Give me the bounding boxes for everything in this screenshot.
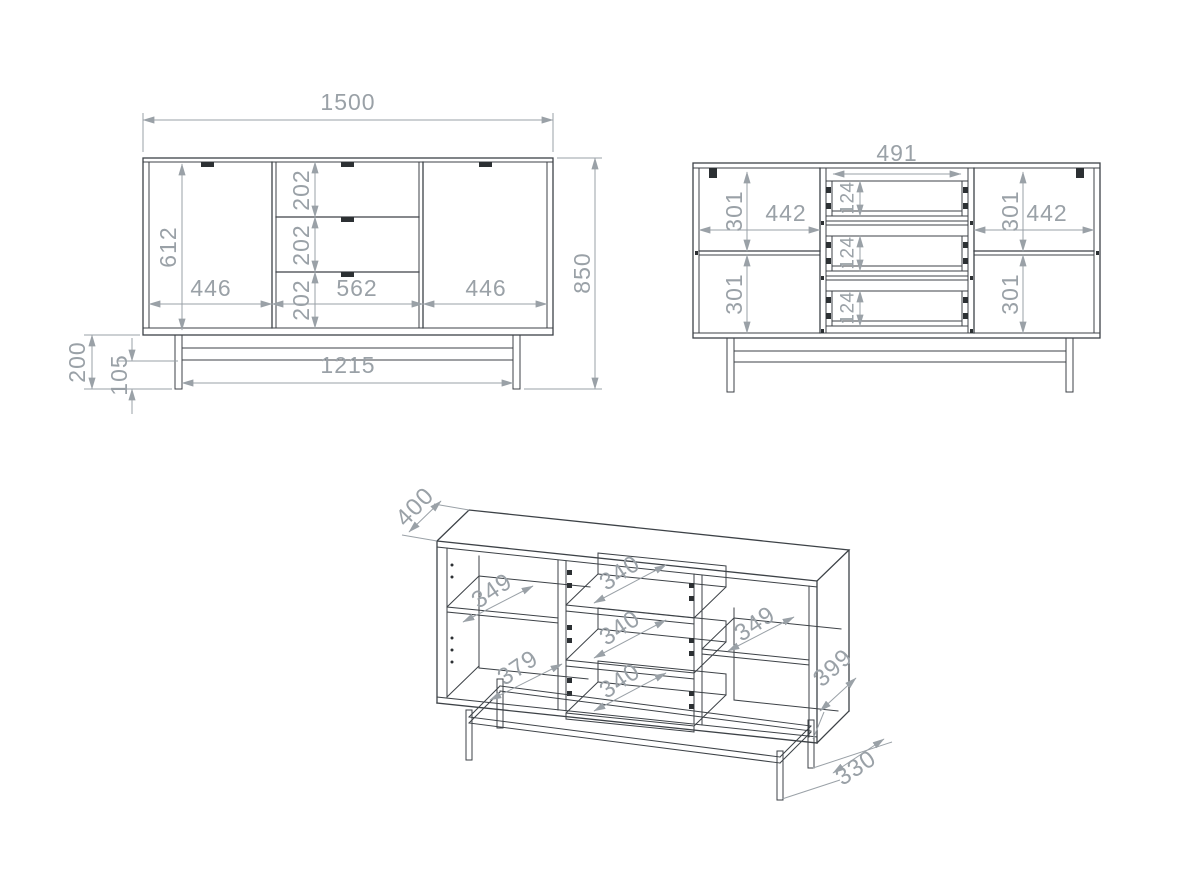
dim-depth: 400 (390, 482, 439, 532)
dim-drawer-front-top: 202 (288, 169, 314, 210)
handle-notch (201, 162, 214, 167)
iso-base-frame (466, 679, 814, 800)
dim-base-frame-depth: 330 (831, 745, 882, 791)
dim-drawer-opening-width: 491 (876, 140, 917, 166)
handle-notch (341, 162, 354, 167)
drawing-canvas: 1500 850 612 202 202 202 446 562 446 (0, 0, 1177, 882)
dim-right-width: 442 (1026, 200, 1067, 226)
hinge-mark (709, 168, 717, 178)
dim-overall-height: 850 (569, 252, 595, 293)
dim-right-shelf-depth: 349 (730, 601, 781, 647)
dim-right-bottom-height: 301 (997, 273, 1023, 314)
technical-drawing: 1500 850 612 202 202 202 446 562 446 (0, 0, 1177, 882)
dim-rail-clearance: 105 (106, 354, 132, 395)
dim-drawer-section-width: 562 (336, 275, 377, 301)
front-view: 1500 850 612 202 202 202 446 562 446 (64, 89, 602, 414)
front-dimensions: 1500 850 612 202 202 202 446 562 446 (64, 89, 602, 414)
dim-side-panel-depth: 399 (808, 644, 858, 693)
dim-drawer-box-middle: 124 (838, 236, 859, 269)
dim-leg-height: 200 (64, 341, 90, 382)
dim-left-door-width: 446 (190, 275, 231, 301)
internal-base-frame (727, 338, 1073, 392)
front-cabinet-outline (143, 158, 553, 335)
handle-notch (479, 162, 492, 167)
dim-left-width: 442 (765, 200, 806, 226)
dim-left-bottom-height: 301 (721, 273, 747, 314)
dim-left-top-height: 301 (721, 190, 747, 231)
dim-drawer-box-top: 124 (838, 181, 859, 214)
internal-view: 491 301 442 301 301 442 301 124 124 124 (693, 140, 1100, 392)
dim-left-bottom-depth: 379 (493, 645, 544, 691)
dim-drawer-box-bottom: 124 (838, 291, 859, 324)
dim-right-top-height: 301 (997, 190, 1023, 231)
handle-notch (341, 217, 354, 222)
internal-cabinet-outline (693, 163, 1100, 338)
dim-right-door-width: 446 (465, 275, 506, 301)
dim-overall-width: 1500 (320, 89, 375, 115)
dim-left-shelf-depth: 349 (467, 568, 518, 614)
dim-door-height: 612 (155, 226, 181, 267)
dim-drawer-front-bottom: 202 (288, 279, 314, 320)
dim-drawer-front-middle: 202 (288, 224, 314, 265)
hinge-mark (1076, 168, 1084, 178)
dim-base-width: 1215 (320, 352, 375, 378)
perspective-view: 400 349 379 340 340 340 349 399 3 (390, 482, 892, 800)
